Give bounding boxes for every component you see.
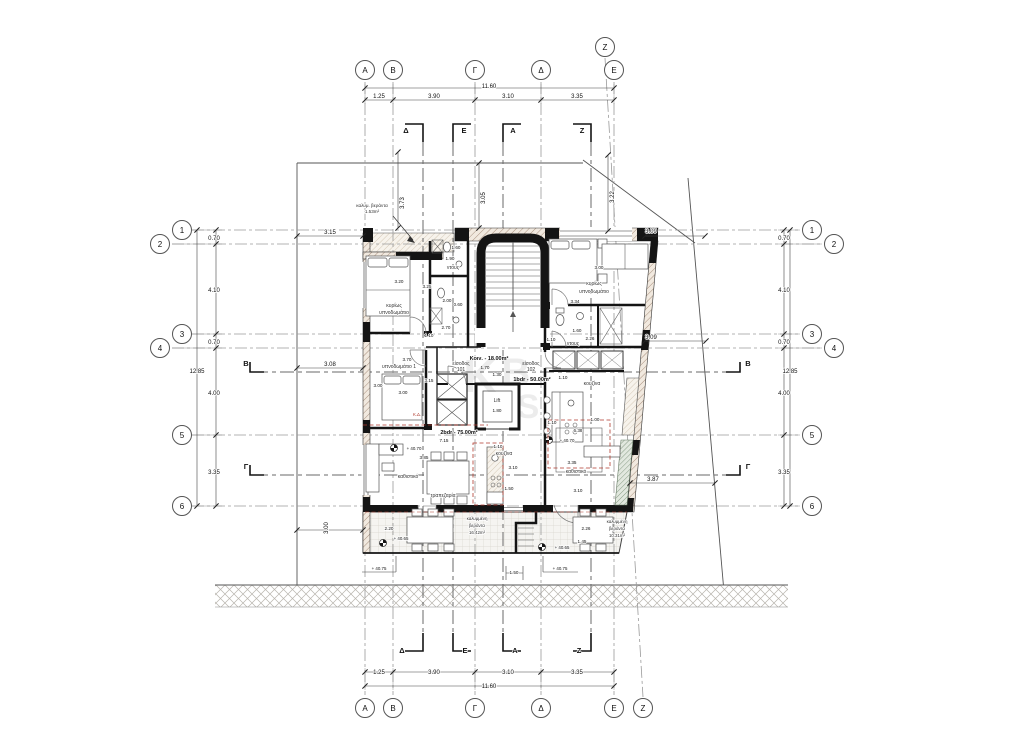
- dim-label: 3.73: [400, 197, 406, 209]
- svg-text:1: 1: [180, 226, 185, 235]
- room-label: βεράντα: [469, 523, 485, 528]
- room-dim: 3.35: [568, 460, 577, 465]
- svg-text:6: 6: [810, 502, 815, 511]
- section-letter: Α: [510, 126, 516, 135]
- room-dim: 2.20: [385, 526, 394, 531]
- room-dim: 3.20: [395, 279, 404, 284]
- room-label: ντους: [447, 265, 460, 271]
- dim-label: 3.00: [324, 522, 330, 534]
- watermark-letter: S: [517, 388, 540, 426]
- section-letter: Ε: [462, 646, 467, 655]
- level-marker: [391, 445, 398, 452]
- grid-bubble-Β: Β: [384, 699, 403, 718]
- level-marker: [380, 540, 387, 547]
- section-letter: Δ: [403, 126, 409, 135]
- dim-label: 3.05: [481, 192, 487, 204]
- grid-bubble-1: 1: [173, 221, 192, 240]
- room-dim: 1.10: [547, 337, 556, 342]
- grid-bubble-Ε: Ε: [605, 699, 624, 718]
- section-letter: Γ: [244, 462, 249, 471]
- svg-text:Ε: Ε: [611, 704, 616, 713]
- level-label: + 40.75: [553, 566, 568, 571]
- dim-label: 11.60: [482, 684, 497, 690]
- room-dim: 1.90: [446, 256, 455, 261]
- grid-bubble-6: 6: [173, 497, 192, 516]
- room-label: υπνοδωμάτιο: [379, 309, 409, 316]
- dim-label: 3.09: [645, 335, 657, 341]
- svg-text:4: 4: [832, 344, 837, 353]
- level-label: + 40.70: [407, 446, 422, 451]
- dim-label: 0.70: [208, 236, 220, 242]
- dim-label: 4.00: [778, 391, 790, 397]
- room-label: καθιστικό: [398, 473, 419, 480]
- svg-text:Β: Β: [390, 704, 395, 713]
- room-label: υπνοδωμάτιο: [579, 288, 609, 295]
- grid-bubble-3: 3: [803, 325, 822, 344]
- svg-text:Δ: Δ: [538, 704, 544, 713]
- room-label: ντους: [567, 341, 580, 347]
- room-dim: 3.10: [509, 465, 518, 470]
- room-dim: 3.00: [595, 265, 604, 270]
- room-dim: 1.50: [510, 570, 519, 575]
- svg-text:Α: Α: [362, 66, 368, 75]
- svg-text:Γ: Γ: [473, 704, 478, 713]
- floor-plan-sheet: { "drawing": {"kind": "architectural flo…: [0, 0, 1024, 756]
- dim-label: 3.22: [610, 191, 616, 203]
- dim-label: 3.09: [645, 229, 657, 235]
- room-label: 10.31m²: [609, 533, 626, 538]
- room-label: καλυμμένη: [607, 519, 628, 524]
- grid-bubble-4: 4: [825, 339, 844, 358]
- dim-label: 3.35: [208, 470, 220, 476]
- grid-bubble-1: 1: [803, 221, 822, 240]
- room-dim: 3.25: [423, 284, 432, 289]
- section-letter: Ζ: [577, 646, 582, 655]
- room-dim: 3.34: [571, 299, 580, 304]
- stair-core: [475, 238, 550, 347]
- wardrobe-right-bedroom: [602, 244, 648, 269]
- room-dim: 1.60: [573, 328, 582, 333]
- section-letter: Β: [243, 359, 249, 368]
- room-label: βεράντα: [609, 526, 625, 531]
- room-dim: 1.00: [591, 417, 600, 422]
- dim-label: 0.70: [778, 236, 790, 242]
- dim-label: 3.90: [428, 670, 440, 676]
- dim-label: 12.85: [782, 369, 798, 375]
- svg-text:Γ: Γ: [473, 66, 478, 75]
- room-dim: 3.15: [425, 378, 434, 383]
- room-label: τραπεζαρία: [431, 493, 456, 499]
- room-dim: 1.45: [578, 539, 587, 544]
- room-dim: 1.80: [493, 408, 502, 413]
- svg-text:6: 6: [180, 502, 185, 511]
- dim-label: 0.70: [778, 340, 790, 346]
- grid-bubble-Γ: Γ: [466, 699, 485, 718]
- svg-text:Ζ: Ζ: [641, 704, 646, 713]
- grid-bubble-Ζ: Ζ: [634, 699, 653, 718]
- bed-master-right: [549, 239, 607, 283]
- svg-text:5: 5: [810, 431, 815, 440]
- grid-bubble-layer: ΑΒΓΔΕΖΑΒΓΔΕΖ123456123456: [151, 38, 844, 718]
- dim-label: 1.25: [373, 670, 385, 676]
- room-dim: 3.00: [399, 390, 408, 395]
- level-label: + 40.65: [555, 545, 570, 550]
- svg-text:4: 4: [158, 344, 163, 353]
- grid-bubble-Α: Α: [356, 699, 375, 718]
- svg-text:2: 2: [832, 240, 837, 249]
- dim-label: 3.35: [778, 470, 790, 476]
- dim-label: 0.70: [208, 340, 220, 346]
- room-dim: 1.10: [494, 444, 503, 449]
- level-label: + 40.65: [394, 536, 409, 541]
- grid-bubble-Α: Α: [356, 61, 375, 80]
- svg-text:Α: Α: [362, 704, 368, 713]
- dim-label: 3.10: [502, 670, 514, 676]
- level-label: + 40.70: [560, 438, 575, 443]
- dim-label: 12.85: [189, 369, 205, 375]
- dim-label: 4.10: [778, 288, 790, 294]
- room-dim: 2.00: [443, 298, 452, 303]
- dim-label: 3.87: [647, 477, 659, 483]
- kitchen-island-right: [544, 392, 583, 442]
- sofa-left-living: [366, 444, 403, 492]
- svg-text:Β: Β: [390, 66, 395, 75]
- section-letter: Β: [745, 359, 751, 368]
- dim-label: 3.35: [571, 94, 583, 100]
- grid-bubble-Ε: Ε: [605, 61, 624, 80]
- level-marker: [546, 437, 553, 444]
- dim-label: 3.08: [324, 362, 336, 368]
- grid-bubble-6: 6: [803, 497, 822, 516]
- section-letter: Γ: [746, 462, 751, 471]
- room-dim: 2.26: [586, 336, 595, 341]
- room-dim: 2.26: [582, 526, 591, 531]
- room-dim: 3.10: [574, 488, 583, 493]
- level-label: + 40.75: [372, 566, 387, 571]
- exterior-wall-right-slanted: [627, 241, 658, 512]
- road-hatch: [215, 585, 788, 607]
- closet-row: [553, 351, 623, 369]
- room-dim: 1.10: [559, 375, 568, 380]
- svg-text:Δ: Δ: [538, 66, 544, 75]
- room-dim: 2.70: [442, 325, 451, 330]
- section-letter: Ε: [461, 126, 466, 135]
- grid-bubble-2: 2: [825, 235, 844, 254]
- section-letter: Ζ: [580, 126, 585, 135]
- room-dim: 3.85: [420, 455, 429, 460]
- plot-boundary-right: [688, 178, 724, 592]
- dim-label: 4.10: [208, 288, 220, 294]
- grid-bubble-Ζ: Ζ: [596, 38, 615, 57]
- room-label: κουζίνα: [584, 381, 601, 387]
- dim-label: 3.15: [324, 230, 336, 236]
- area-label: 2bdr - 75.00m²: [440, 429, 477, 436]
- dim-label: 3.35: [571, 670, 583, 676]
- room-dim: 3.70: [403, 357, 412, 362]
- grid-bubble-Δ: Δ: [532, 699, 551, 718]
- svg-text:1: 1: [810, 226, 815, 235]
- dim-label: 4.00: [208, 391, 220, 397]
- grid-bubble-Γ: Γ: [466, 61, 485, 80]
- dim-label: 11.60: [482, 84, 497, 90]
- room-dim: 1.10: [425, 333, 434, 338]
- room-label: καλυμ. βεράντα: [356, 202, 388, 208]
- section-letter: Α: [512, 646, 518, 655]
- room-label: κυρίως: [586, 281, 602, 287]
- room-dim: 6.38: [574, 428, 583, 433]
- svg-text:3: 3: [180, 330, 185, 339]
- grid-bubble-4: 4: [151, 339, 170, 358]
- dim-label: 3.90: [428, 94, 440, 100]
- floor-plan-drawing: 11.601.253.903.103.351.253.903.103.3511.…: [0, 0, 1024, 756]
- room-label: 1.53m²: [365, 209, 380, 214]
- room-label: καλυμμένη: [467, 516, 488, 521]
- veranda-table-left: [407, 509, 454, 551]
- svg-text:5: 5: [180, 431, 185, 440]
- room-dim: 3.00: [374, 383, 383, 388]
- room-label: καθιστικό: [566, 468, 587, 475]
- room-dim: 1.10: [548, 420, 557, 425]
- grid-bubble-2: 2: [151, 235, 170, 254]
- room-label: κυρίως: [386, 303, 402, 309]
- room-label: υπνοδωμάτιο 1: [382, 363, 416, 370]
- room-dim: 1.60: [452, 245, 461, 250]
- grid-bubble-Β: Β: [384, 61, 403, 80]
- grid-bubble-Δ: Δ: [532, 61, 551, 80]
- section-letter: Δ: [399, 646, 405, 655]
- watermark-letter: Κ: [463, 350, 496, 402]
- room-label: κουζίνα: [496, 451, 513, 457]
- grid-bubble-5: 5: [173, 426, 192, 445]
- svg-text:Ε: Ε: [611, 66, 616, 75]
- svg-text:2: 2: [158, 240, 163, 249]
- room-dim: 7.15: [440, 438, 449, 443]
- svg-text:Ζ: Ζ: [603, 43, 608, 52]
- room-label: 16.42m²: [469, 530, 486, 535]
- level-marker: [539, 544, 546, 551]
- grid-bubble-5: 5: [803, 426, 822, 445]
- room-dim: 1.50: [505, 486, 514, 491]
- room-dim: 0.60: [454, 302, 463, 307]
- red-note: Κ.Δ.: [413, 412, 421, 417]
- dim-label: 3.10: [502, 94, 514, 100]
- grid-bubble-3: 3: [173, 325, 192, 344]
- svg-text:3: 3: [810, 330, 815, 339]
- dim-label: 1.25: [373, 94, 385, 100]
